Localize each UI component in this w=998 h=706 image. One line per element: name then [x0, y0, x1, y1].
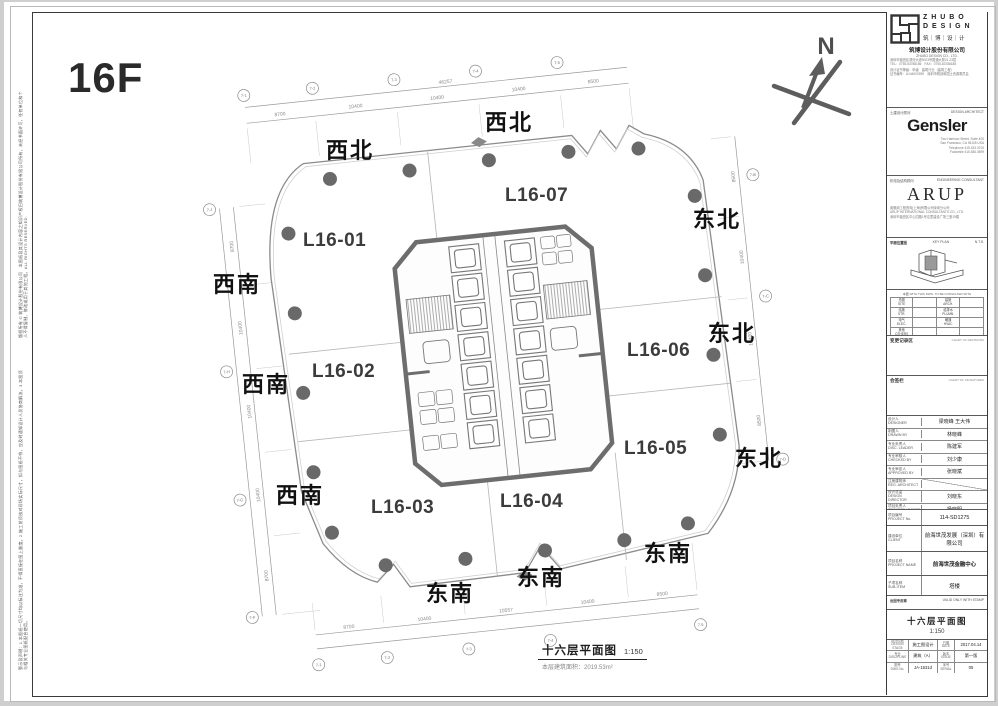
- stair-right: [543, 281, 590, 319]
- bt-discipline-value: 建筑（A）: [909, 651, 938, 661]
- svg-text:7-F: 7-F: [249, 615, 256, 621]
- svg-text:8500: 8500: [730, 171, 737, 183]
- bt-serial-value: 05: [955, 663, 987, 673]
- drawing-sheet: 版权所有 © 筑博设计股份有限公司 本图纸及其设计内容之知识产权归筑博设计股份有…: [4, 2, 994, 701]
- titleblock-ref-drawings: 本图 WITH THIS DWG. TO BE CONSULTED WITH 总…: [887, 290, 987, 336]
- unit-label-l16-04: L16-04: [500, 491, 563, 513]
- titleblock-signatures: 会签栏 CHART OF SIGNATURES: [887, 376, 987, 416]
- svg-text:10557: 10557: [499, 607, 514, 614]
- titleblock-zhubo: Z H U B O D E S I G N 筑｜博｜设｜计 筑博设计股份有限公司…: [887, 12, 987, 108]
- svg-text:10400: 10400: [348, 103, 363, 110]
- drawing-caption: 十六层平面图 1:150 本层建筑面积：2019.53m²: [538, 642, 647, 671]
- caption-title: 十六层平面图: [542, 642, 617, 658]
- titleblock-project-name: 项目名称 PROJECT NAME 前海世茂金融中心: [887, 552, 987, 576]
- personnel-value: 梁晓峰 王大伟: [922, 418, 987, 425]
- personnel-label: 制图人 DRAWN BY: [887, 430, 922, 438]
- gensler-role-en: DESIGN ARCHITECT: [951, 110, 984, 115]
- zhubo-address: 深圳市福田区滨河大道9023号国通大厦21-23层 TEL：0755-83788…: [890, 58, 984, 67]
- unit-label-l16-05: L16-05: [624, 438, 687, 460]
- personnel-label: 注册建筑师 REG. ARCHITECT: [887, 480, 922, 488]
- personnel-value-empty: [922, 479, 987, 491]
- svg-text:8700: 8700: [343, 624, 355, 631]
- svg-text:7-B: 7-B: [749, 172, 756, 178]
- bt-issue-label: 版本 ISSUE: [938, 651, 955, 661]
- signatures-label: 会签栏: [890, 378, 904, 384]
- svg-text:8700: 8700: [229, 240, 236, 252]
- floor-label: 16F: [68, 54, 143, 102]
- project-name-value: 前海世茂金融中心: [922, 559, 987, 569]
- project-no-label: 项目编号 PROJECT No.: [887, 510, 922, 525]
- direction-label-ne-1: 东北: [693, 202, 741, 234]
- svg-text:10400: 10400: [511, 86, 526, 93]
- personnel-label: 专业负责人 DISC. LEADER: [887, 443, 922, 451]
- refs-header: 本图 WITH THIS DWG. TO BE CONSULTED WITH: [890, 292, 984, 296]
- svg-text:7-G: 7-G: [236, 497, 243, 503]
- personnel-value: 张晓斌: [922, 468, 987, 475]
- direction-label-nw-1: 西北: [326, 133, 374, 165]
- svg-text:8500: 8500: [656, 591, 668, 598]
- personnel-label: 专业审定人 APPROVED BY: [887, 468, 922, 476]
- stair-left: [406, 295, 453, 333]
- ref-cell: 其他 OTHERS: [891, 328, 913, 336]
- bt-stage-value: 施工图设计: [909, 640, 938, 650]
- zhubo-name-cn: 筑｜博｜设｜计: [923, 34, 971, 42]
- gensler-logo: Gensler: [890, 116, 984, 136]
- titleblock-project-no: 项目编号 PROJECT No. 114-SD1275: [887, 510, 987, 526]
- keyplan-label-en: KEY PLAN: [933, 240, 950, 245]
- direction-label-sw-2: 西南: [242, 367, 290, 399]
- caption-area-value: 2019.53m²: [584, 665, 613, 671]
- direction-label-se-1: 东南: [644, 536, 692, 568]
- svg-text:8700: 8700: [274, 111, 286, 118]
- zhubo-name-en-2: D E S I G N: [923, 23, 971, 32]
- svg-text:10400: 10400: [430, 95, 445, 102]
- ref-cell: 给排水 PLUMB.: [937, 308, 959, 318]
- svg-text:10400: 10400: [237, 321, 244, 336]
- titleblock-personnel: 设计人 DESIGNER梁晓峰 王大伟 制图人 DRAWN BY林晓峰 专业负责…: [887, 416, 987, 510]
- bt-issue-value: 第一版: [955, 651, 987, 661]
- svg-text:10400: 10400: [255, 488, 262, 503]
- ref-cell: 总图 SITE: [891, 298, 913, 308]
- personnel-label: 设计人 DESIGNER: [887, 418, 922, 426]
- titleblock-gensler: 土建设计顾问 DESIGN ARCHITECT Gensler Two Harr…: [887, 108, 987, 176]
- north-arrow: N: [774, 33, 849, 123]
- personnel-value: 刘少康: [922, 456, 987, 463]
- direction-label-ne-3: 东北: [735, 441, 783, 473]
- personnel-value: 刘晓东: [922, 493, 987, 500]
- titleblock-stamp: 出图专用章 VALID ONLY WITH STAMP: [887, 596, 987, 610]
- zhubo-name-en-1: Z H U B O: [923, 14, 971, 23]
- client-value: 前海世茂发展（深圳）有限公司: [922, 530, 987, 548]
- arup-role-cn: 机电及结构顾问: [890, 178, 914, 183]
- personnel-label: 设计总监 DESIGN DIRECTOR: [887, 491, 922, 502]
- personnel-label: 专业审核人 CHECKED BY: [887, 455, 922, 463]
- zhubo-logo-icon: [890, 14, 920, 44]
- arup-address: 奥雅纳工程咨询(上海)有限公司深圳分公司 ARUP INTERNATIONAL …: [890, 206, 984, 219]
- bt-date-label: 日期 DATE: [938, 640, 955, 650]
- core: [392, 224, 614, 487]
- ref-cell: 结施 STR.: [891, 308, 913, 318]
- direction-label-ne-2: 东北: [708, 316, 756, 348]
- unit-label-l16-02: L16-02: [312, 361, 375, 383]
- titleblock-arup: 机电及结构顾问 ENGINEERING CONSULTANT ARUP 奥雅纳工…: [887, 176, 987, 238]
- titleblock-bottom-grid: 设计阶段 DESIGN STAGE 施工图设计 日期 DATE 2017.04.…: [887, 640, 987, 695]
- bt-discipline-label: 专业 DISCIPLINE: [887, 651, 909, 661]
- direction-label-se-3: 东南: [426, 576, 474, 608]
- bt-dwgno-value: JA-1631d: [909, 663, 938, 673]
- svg-text:8500: 8500: [756, 414, 763, 426]
- revisions-label: 变更记录区: [890, 338, 913, 344]
- svg-text:7-H: 7-H: [223, 369, 230, 375]
- title-block: Z H U B O D E S I G N 筑｜博｜设｜计 筑博设计股份有限公司…: [886, 12, 987, 695]
- ref-cell: 暖通 HVAC: [937, 318, 959, 328]
- svg-text:10400: 10400: [246, 404, 253, 419]
- svg-text:10400: 10400: [580, 599, 595, 606]
- direction-label-sw-1: 西南: [213, 267, 261, 299]
- stamp-label: 出图专用章: [890, 598, 907, 607]
- titleblock-client: 建设单位 CLIENT 前海世茂发展（深圳）有限公司: [887, 526, 987, 552]
- personnel-value: 陈建军: [922, 443, 987, 450]
- signatures-label-en: CHART OF SIGNATURES: [949, 378, 984, 382]
- sheet-title-scale: 1:150: [929, 629, 944, 635]
- titleblock-subitem: 子项名称 SUB-ITEM 塔楼: [887, 576, 987, 596]
- project-no-value: 114-SD1275: [922, 514, 987, 522]
- keyplan-nts: N.T.S.: [975, 240, 984, 245]
- svg-text:8700: 8700: [264, 570, 271, 582]
- stamp-note: VALID ONLY WITH STAMP: [943, 598, 984, 607]
- arup-logo: ARUP: [890, 184, 984, 205]
- titleblock-sheet-title: 十六层平面图 1:150: [887, 610, 987, 640]
- north-letter: N: [817, 33, 834, 60]
- subitem-label: 子项名称 SUB-ITEM: [887, 576, 922, 595]
- bt-serial-label: 序号 SERIAL: [938, 663, 955, 673]
- gensler-address: Two Harrison Street, Suite 400 San Franc…: [890, 137, 984, 154]
- svg-text:10400: 10400: [739, 250, 746, 265]
- keyplan-sketch: [905, 246, 969, 286]
- bt-date-value: 2017.04.14: [955, 640, 987, 650]
- zhubo-company-cn: 筑博设计股份有限公司: [890, 46, 984, 54]
- svg-text:7-C: 7-C: [762, 293, 769, 299]
- caption-area-label: 本层建筑面积：: [542, 665, 584, 671]
- direction-label-sw-3: 西南: [276, 478, 324, 510]
- svg-text:8500: 8500: [587, 78, 599, 85]
- svg-text:7-J: 7-J: [207, 207, 213, 213]
- keyplan-label-cn: 平面位置图: [890, 240, 907, 245]
- project-name-label: 项目名称 PROJECT NAME: [887, 552, 922, 575]
- sheet-title-text: 十六层平面图: [907, 615, 967, 627]
- subitem-value: 塔楼: [922, 581, 987, 591]
- unit-label-l16-07: L16-07: [505, 185, 568, 207]
- svg-text:10400: 10400: [417, 616, 432, 623]
- unit-label-l16-06: L16-06: [627, 340, 690, 362]
- ref-cell: [937, 328, 959, 336]
- arup-role-en: ENGINEERING CONSULTANT: [937, 178, 984, 183]
- ref-cell: 建施 ARCH.: [937, 298, 959, 308]
- client-label: 建设单位 CLIENT: [887, 526, 922, 551]
- unit-label-l16-03: L16-03: [371, 497, 434, 519]
- gensler-role-cn: 土建设计顾问: [890, 110, 910, 115]
- personnel-value: 林晓峰: [922, 431, 987, 438]
- direction-label-se-2: 东南: [517, 560, 565, 592]
- direction-label-nw-2: 西北: [485, 105, 533, 137]
- caption-scale: 1:150: [624, 647, 643, 656]
- bt-stage-label: 设计阶段 DESIGN STAGE: [887, 640, 909, 650]
- unit-label-l16-01: L16-01: [303, 230, 366, 252]
- revisions-label-en: CHART OF REVISIONS: [952, 338, 984, 342]
- ref-cell: 电气 ELEC.: [891, 318, 913, 328]
- titleblock-keyplan: 平面位置图 KEY PLAN N.T.S.: [887, 238, 987, 290]
- bt-dwgno-label: 图号 DWG No.: [887, 663, 909, 673]
- svg-text:46257: 46257: [438, 79, 453, 86]
- titleblock-revisions: 变更记录区 CHART OF REVISIONS: [887, 336, 987, 376]
- zhubo-cert: 设计证书等级：甲级 建筑行业（建筑工程） 证书编号：A144003939 深圳市…: [890, 68, 984, 77]
